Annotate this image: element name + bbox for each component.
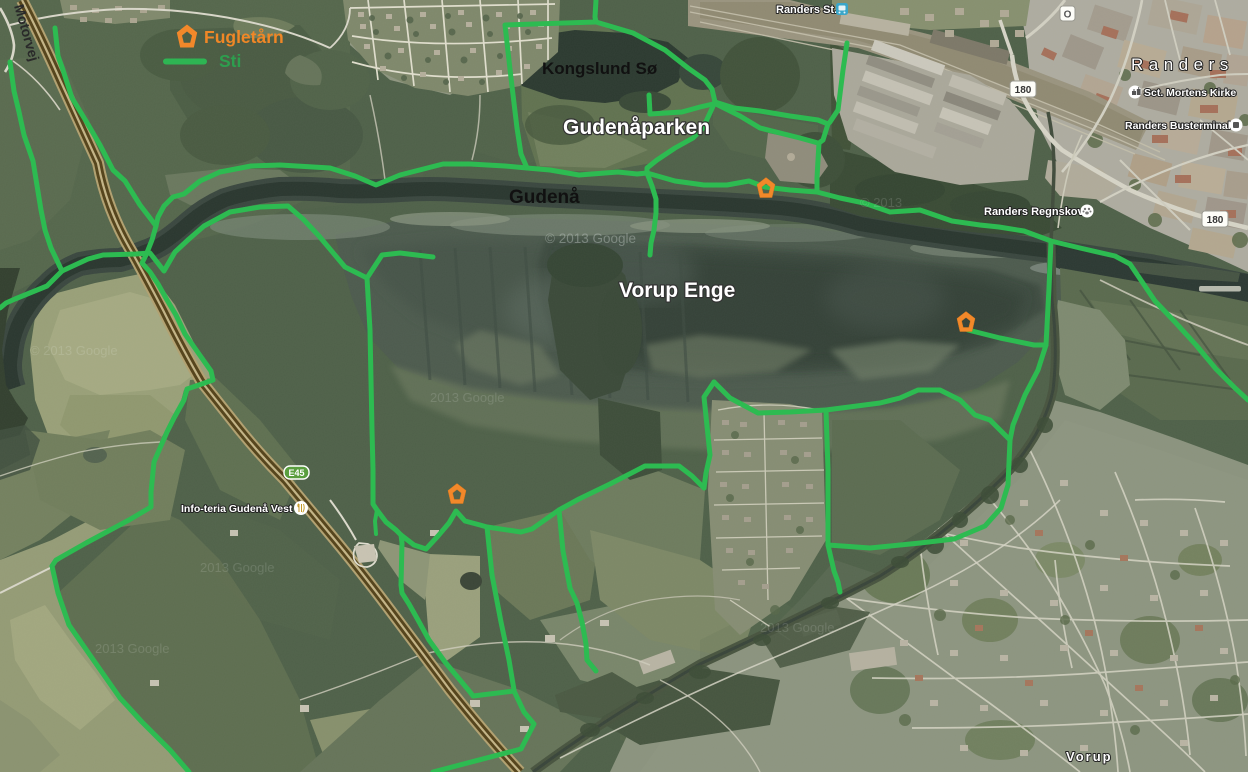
svg-text:2013 Google: 2013 Google <box>430 390 504 405</box>
svg-text:Gudenå: Gudenå <box>509 187 580 208</box>
svg-text:O: O <box>1064 10 1072 21</box>
svg-text:© 2013 Google: © 2013 Google <box>30 343 118 358</box>
svg-text:180: 180 <box>1015 85 1032 96</box>
svg-text:Info-teria Gudenå Vest: Info-teria Gudenå Vest <box>181 503 293 515</box>
svg-text:Fugletårn: Fugletårn <box>204 27 284 47</box>
svg-text:© 2013 Google: © 2013 Google <box>545 231 636 246</box>
svg-text:Vorup: Vorup <box>1066 749 1113 764</box>
svg-text:Sti: Sti <box>219 51 241 71</box>
svg-text:180: 180 <box>1207 215 1224 226</box>
svg-text:2013 Google: 2013 Google <box>760 620 834 635</box>
svg-text:2013 Google: 2013 Google <box>200 560 274 575</box>
svg-text:Vorup Enge: Vorup Enge <box>619 279 735 302</box>
svg-text:Randers Regnskov: Randers Regnskov <box>984 206 1085 218</box>
svg-text:Kongslund Sø: Kongslund Sø <box>542 59 658 78</box>
svg-text:© 2013: © 2013 <box>860 195 902 210</box>
svg-text:Randers St.: Randers St. <box>776 4 837 16</box>
svg-text:Sct. Mortens Kirke: Sct. Mortens Kirke <box>1144 87 1236 99</box>
svg-text:Gudenåparken: Gudenåparken <box>563 116 710 139</box>
svg-text:Randers: Randers <box>1131 55 1234 74</box>
svg-text:Randers Busterminal: Randers Busterminal <box>1125 120 1231 132</box>
svg-text:2013 Google: 2013 Google <box>95 641 169 656</box>
svg-text:E45: E45 <box>288 468 304 478</box>
